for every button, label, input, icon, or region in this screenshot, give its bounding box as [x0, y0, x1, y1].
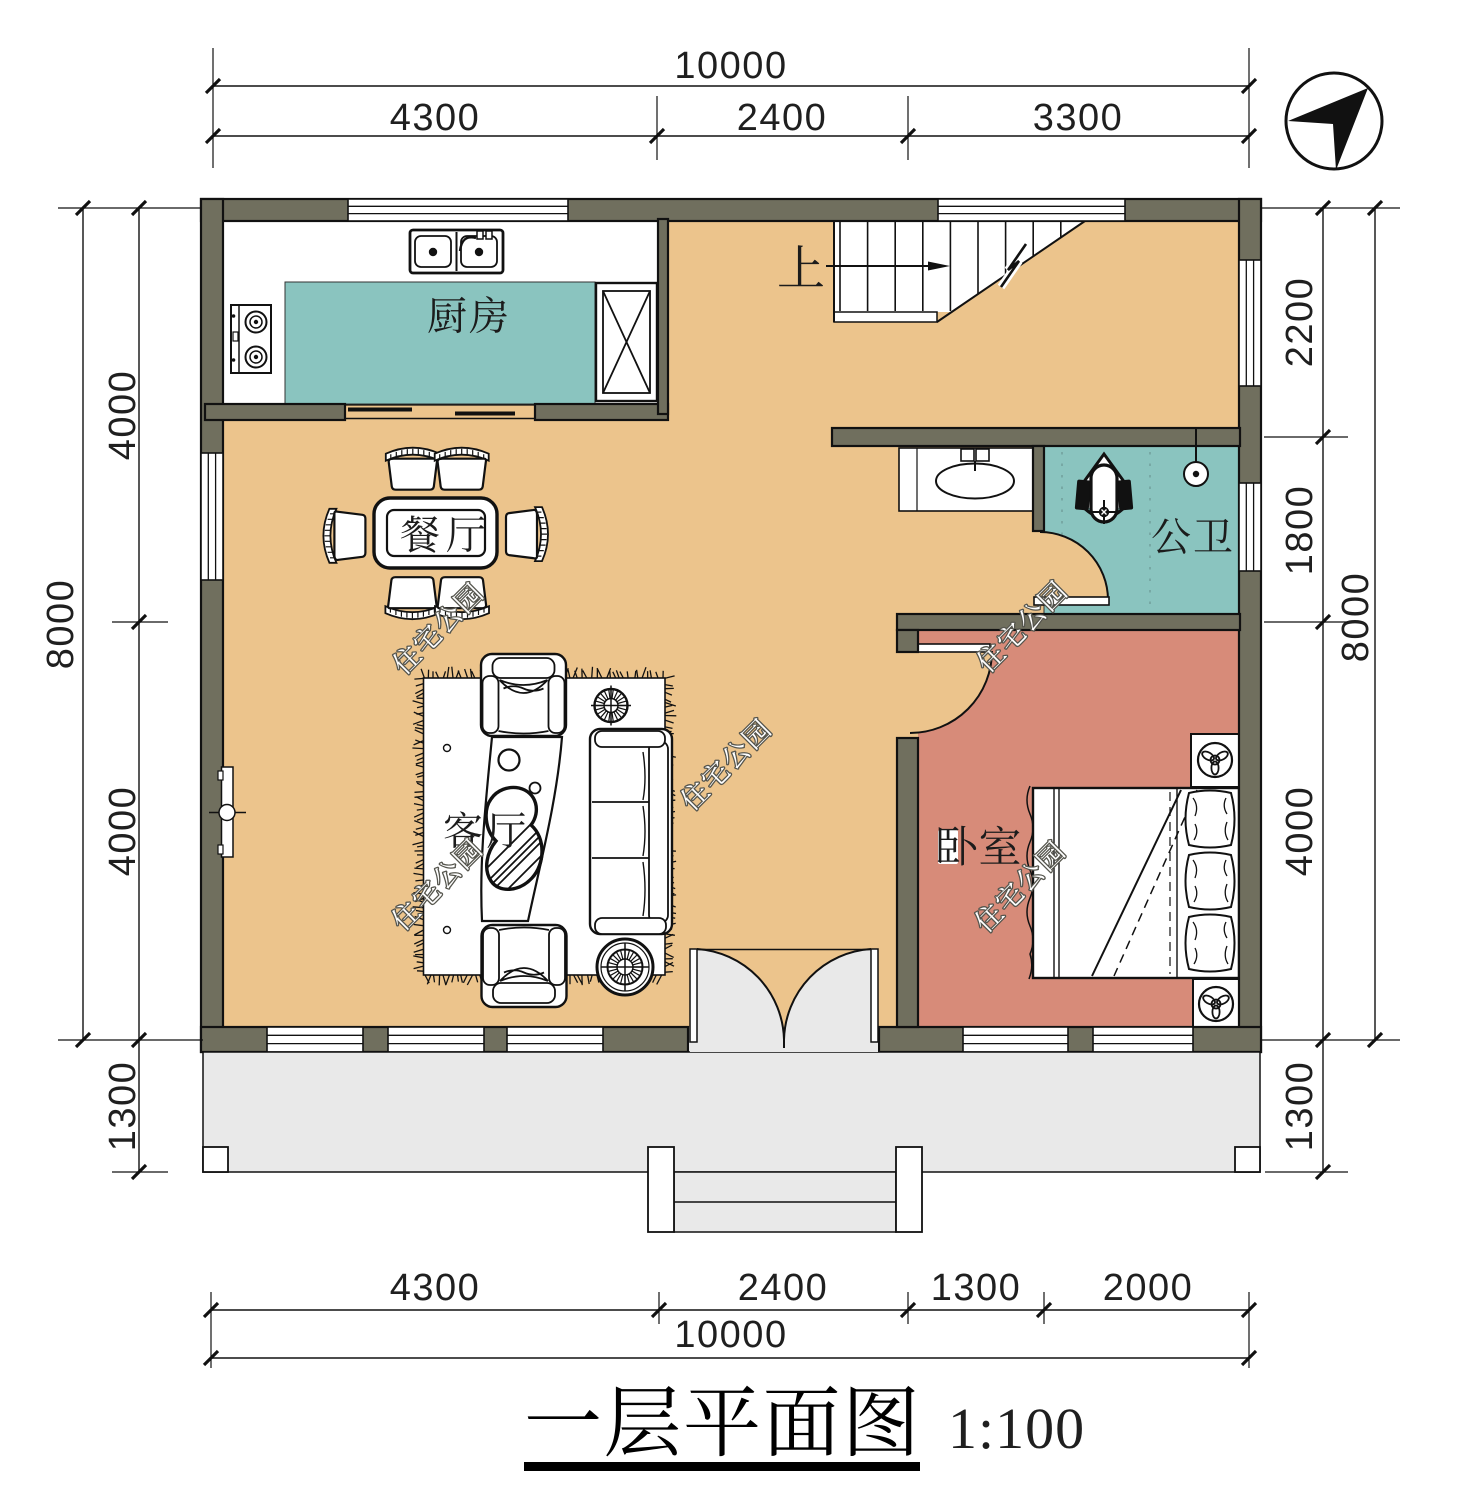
svg-text:4300: 4300 [390, 1267, 481, 1309]
svg-text:8000: 8000 [40, 579, 82, 670]
svg-text:1300: 1300 [931, 1267, 1022, 1309]
svg-text:3300: 3300 [1033, 97, 1124, 139]
svg-text:2000: 2000 [1103, 1267, 1194, 1309]
svg-text:4000: 4000 [1279, 786, 1321, 877]
svg-text:1:100: 1:100 [948, 1396, 1085, 1461]
svg-text:4000: 4000 [102, 370, 144, 461]
svg-text:10000: 10000 [674, 1314, 787, 1356]
svg-text:1300: 1300 [1279, 1061, 1321, 1152]
svg-text:2400: 2400 [738, 1267, 829, 1309]
svg-text:1300: 1300 [102, 1061, 144, 1152]
svg-text:4000: 4000 [102, 786, 144, 877]
svg-text:1800: 1800 [1279, 485, 1321, 576]
svg-text:8000: 8000 [1335, 572, 1377, 663]
svg-text:10000: 10000 [674, 45, 787, 87]
svg-text:2400: 2400 [737, 97, 828, 139]
svg-text:2200: 2200 [1279, 277, 1321, 368]
svg-text:4300: 4300 [390, 97, 481, 139]
